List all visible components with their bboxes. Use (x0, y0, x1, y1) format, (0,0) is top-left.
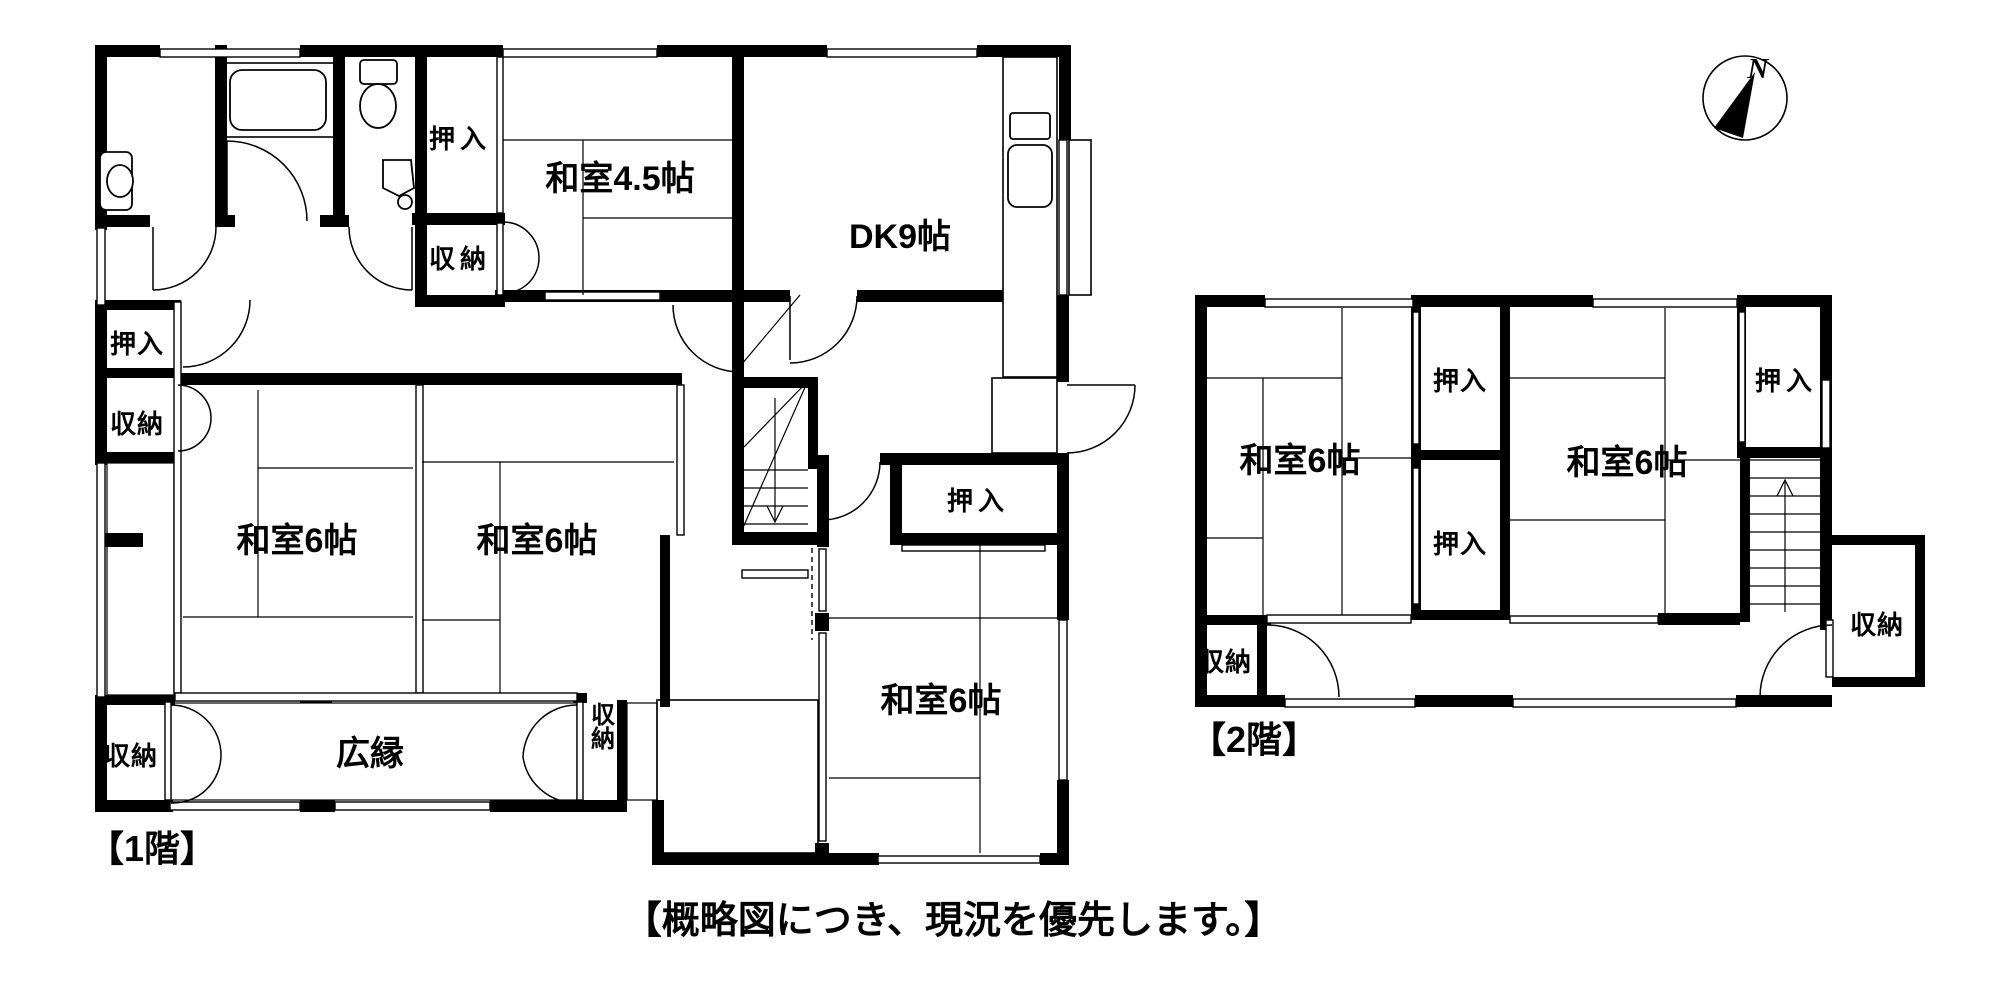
room-label-oshiire-west: 押入 (110, 329, 164, 359)
room-label-oshiire-north: 押入 (429, 124, 491, 154)
room-label-washitsu-45: 和室4.5帖 (545, 159, 694, 198)
compass-north-label: N (1747, 53, 1770, 85)
floor1-title: 【1階】 (88, 828, 216, 869)
room-label-washitsu-west: 和室6帖 (237, 521, 358, 560)
kitchen-counter (1003, 57, 1057, 377)
toilet-west-icon (100, 152, 133, 210)
room-label-shunou-southwest: 収納 (104, 741, 158, 771)
floorplan-canvas: 押入 収納 和室4.5帖 DK9帖 押入 収納 和室6帖 和室6帖 広縁 収納 … (0, 0, 1996, 984)
room-label-oshiire-east: 押入 (947, 486, 1009, 516)
room-label-shunou-south: 収納 (587, 702, 615, 750)
floor2-plan: 和室6帖 和室6帖 押入 押入 押入 収納 収納 【2階】 (1190, 295, 1925, 760)
terrace-tile (657, 700, 818, 853)
corner-sink-icon (383, 160, 414, 209)
entrance-door (1067, 385, 1135, 453)
room-label-2f-oshiire-lower: 押入 (1433, 529, 1487, 559)
genkan-tile (992, 378, 1057, 453)
bay-window (1069, 140, 1091, 295)
engawa-west-deck (107, 463, 174, 695)
compass: N (1703, 53, 1787, 140)
bathtub-icon (222, 63, 334, 137)
room-label-2f-oshiire-right: 押入 (1755, 366, 1817, 396)
room-label-washitsu-center: 和室6帖 (477, 521, 598, 560)
porch-step (627, 703, 657, 800)
room-label-2f-shunou-left: 収納 (1198, 647, 1252, 677)
stairs-2f (1750, 478, 1820, 612)
room-label-dk: DK9帖 (849, 218, 951, 256)
room-label-2f-oshiire-upper: 押入 (1433, 366, 1487, 396)
floor2-walls (1195, 295, 1925, 707)
kitchen-sink-icon (1008, 145, 1052, 207)
floorplan-page: 押入 収納 和室4.5帖 DK9帖 押入 収納 和室6帖 和室6帖 広縁 収納 … (0, 0, 1996, 984)
floor2-doors (1267, 625, 1832, 697)
floor1-fixtures (100, 57, 1091, 377)
room-label-hiroen: 広縁 (336, 735, 404, 773)
stairs-1f (736, 295, 812, 640)
toilet-east-icon (360, 60, 397, 128)
floor1-plan: 押入 収納 和室4.5帖 DK9帖 押入 収納 和室6帖 和室6帖 広縁 収納 … (88, 45, 1135, 869)
room-label-2f-washitsu-right: 和室6帖 (1567, 443, 1688, 482)
room-label-shunou-west: 収納 (110, 409, 164, 439)
room-label-2f-shunou-right: 収納 (1850, 610, 1904, 640)
disclaimer-caption: 【概略図につき、現況を優先します。】 (624, 900, 1283, 942)
stove-icon (1010, 113, 1050, 139)
floor2-title: 【2階】 (1190, 719, 1318, 760)
room-label-2f-washitsu-left: 和室6帖 (1240, 441, 1361, 480)
room-label-washitsu-southeast: 和室6帖 (881, 681, 1002, 720)
room-label-shunou-north: 収納 (429, 244, 491, 274)
